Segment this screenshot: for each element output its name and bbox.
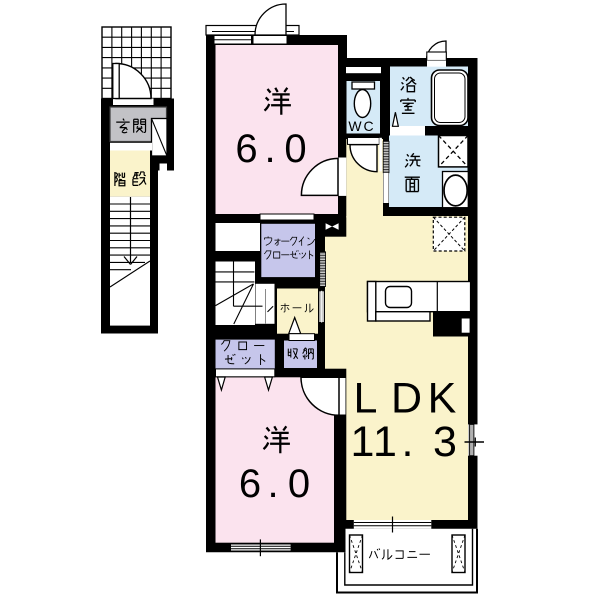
svg-text:3: 3 (433, 418, 457, 466)
svg-text:6: 6 (235, 127, 257, 171)
svg-text:.: . (267, 462, 278, 506)
svg-text:WC: WC (348, 118, 375, 134)
svg-text:0: 0 (288, 462, 310, 506)
svg-text:D: D (391, 375, 422, 423)
svg-text:0: 0 (284, 127, 306, 171)
svg-text:L: L (354, 375, 378, 423)
svg-text:6: 6 (239, 462, 261, 506)
svg-text:K: K (428, 375, 457, 423)
svg-text:.: . (264, 127, 275, 171)
svg-text:1: 1 (351, 418, 375, 466)
svg-text:.: . (402, 418, 414, 466)
svg-text:1: 1 (373, 418, 397, 466)
